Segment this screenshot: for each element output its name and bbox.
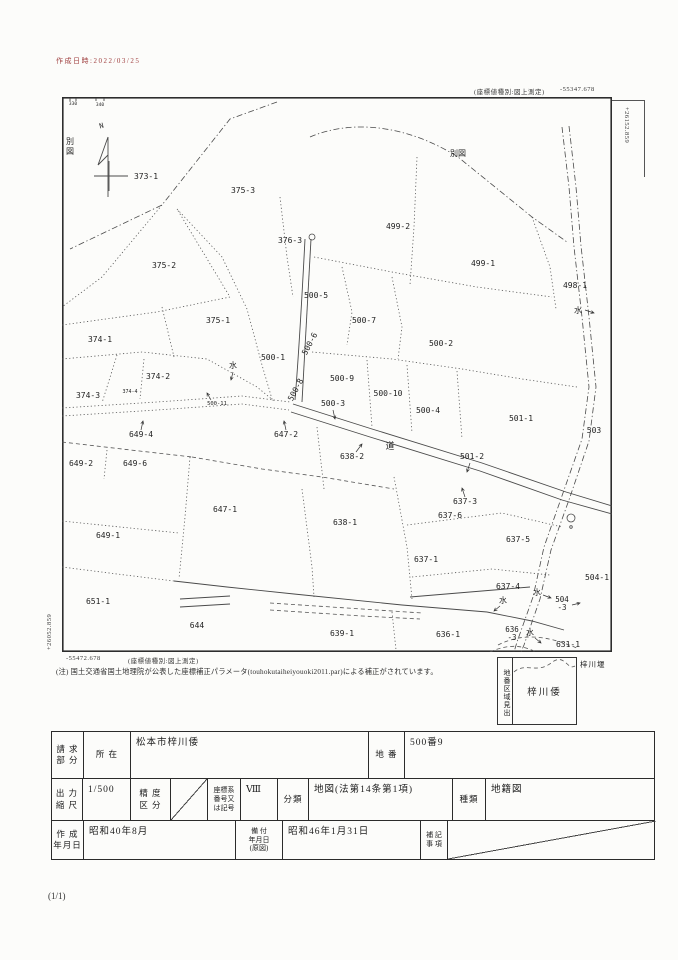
water-label: 水 [533,587,541,597]
parcel-label: 500-4 [416,406,440,415]
parcel-label: 636-3 [505,625,519,642]
remarks-label: 補 記事 項 [421,821,448,859]
request-part-label: 請 求部 分 [52,732,84,778]
weir-squiggle [513,658,576,678]
label-leader-arrow [283,421,286,430]
parcel-label: 375-1 [206,316,230,325]
district-area-name: 梓川倭 [527,684,562,698]
parcel-label: 637-4 [496,582,520,591]
parcel-label: 373-1 [134,172,158,181]
parcel-label: 501-1 [509,414,533,423]
parcel-label: 649-4 [129,430,153,439]
parcel-label: 500-11 [207,401,227,407]
map-area: 330340N別図373-1375-3376-3別図499-2499-1498-… [62,97,612,652]
junction-circle [570,526,573,529]
certificate-table: 請 求部 分 所 在 松本市梓川倭 地 番 500番9 出 力縮 尺 1/500 [51,731,655,860]
parcel-label: 376-3 [278,236,302,245]
label-leader-arrow [462,488,465,497]
parcel-label: 504-3 [555,595,569,612]
parcel-label: 644 [190,621,205,630]
filing-date-label: 備 付年月日(原図) [236,821,283,859]
parcel-label: 500-1 [261,353,285,362]
parcel-label: 499-2 [386,222,410,231]
x-coordinate-bottom: -55472.678 [66,655,101,662]
parcel-label: 651-1 [86,597,110,606]
parcel-label: 636-1 [436,630,460,639]
parcel-label: 649-6 [123,459,147,468]
label-leader-arrow [207,393,211,400]
cadastral-map-certificate: 作成日時:2022/03/25 (座標値種別:図上測定) -55347.678 … [0,0,678,960]
location-value: 松本市梓川倭 [131,732,369,778]
parcel-labels: 330340N別図373-1375-3376-3別図499-2499-1498-… [66,101,609,649]
classification-label: 分類 [278,779,309,820]
x-coordinate-top: -55347.678 [560,86,595,93]
table-row: 請 求部 分 所 在 松本市梓川倭 地 番 500番9 [52,732,654,778]
parcel-label: 374-3 [76,391,100,400]
parcel-label: 637-1 [414,555,438,564]
parcel-label: 503 [587,426,602,435]
survey-cross [94,161,128,191]
parcel-label: 374-2 [146,372,170,381]
map-ref-top: 別図 [450,149,466,158]
label-leader-arrow [494,606,500,611]
parcel-label: 649-2 [69,459,93,468]
parcel-label: 500-3 [321,399,345,408]
label-leader-arrow [141,421,144,430]
coordinate-system-label: 座標系番号又は記号 [208,779,241,820]
parcel-label: 649-1 [96,531,120,540]
junction-circle [309,234,315,240]
parcel-label: 638-2 [340,452,364,461]
label-leader-arrow [333,410,336,419]
road-label: 道 [385,440,394,451]
parcel-label: 647-2 [274,430,298,439]
north-arrow [98,137,108,197]
lot-number-label: 地 番 [369,732,405,778]
parcel-label: 639-1 [330,629,354,638]
kind-value: 地籍図 [486,779,656,820]
north-label: N [98,122,104,131]
coordinate-type-note-bottom: (座標値種別:図上測定) [128,655,199,665]
precision-class-label: 精 度区 分 [131,779,171,820]
parcel-label: 500-2 [429,339,453,348]
lot-number-value: 500番9 [405,732,656,778]
label-leader-arrow [572,602,580,605]
kind-label: 種類 [453,779,486,820]
parcel-label: 638-1 [333,518,357,527]
water-label: 水 [574,305,582,315]
border-tick-label: 330 [69,101,77,107]
water-label: 水 [499,595,507,605]
coordinate-system-value: Ⅷ [241,779,278,820]
district-index-label: 地番区域見出 [498,658,513,724]
parcel-label: 637-5 [506,535,530,544]
parcel-label: 374-1 [88,335,112,344]
parcel-label: 647-1 [213,505,237,514]
parcel-label: 374-4 [122,389,137,395]
map-ref-left: 別図 [66,137,74,156]
parcel-label: 499-1 [471,259,495,268]
border-tick-label: 340 [96,102,104,108]
parcel-label: 375-2 [152,261,176,270]
creation-date-value: 昭和40年8月 [84,821,236,859]
parcel-label: 501-2 [460,452,484,461]
label-leader-arrow [543,595,551,598]
water-label: 水 [229,360,237,370]
location-label: 所 在 [84,732,131,778]
output-scale-value: 1/500 [83,779,131,820]
parcel-label: 637-6 [438,511,462,520]
district-index-box: 地番区域見出 梓川倭 [497,657,577,725]
creation-date-label: 作 成年月日 [52,821,84,859]
label-leader-arrow [585,310,594,313]
parcel-label: 375-3 [231,186,255,195]
filing-date-value: 昭和46年1月31日 [283,821,421,859]
y-coordinate-left: +26052.859 [46,614,53,650]
remarks-empty-cell [448,821,656,859]
parcel-label: 637-3 [453,497,477,506]
weir-name-label: 梓川堰 [580,659,606,670]
map-linework: 330340N別図373-1375-3376-3別図499-2499-1498-… [62,97,612,652]
table-row: 出 力縮 尺 1/500 精 度区 分 座標系番号又は記号 Ⅷ 分類 地図(法第… [52,778,654,820]
label-leader-arrow [230,372,233,380]
water-label: 水 [526,627,534,637]
parcel-label: 498-1 [563,281,587,290]
parcel-label: 500-5 [304,291,328,300]
border-extension-line [612,100,645,101]
coordinate-type-note-top: (座標値種別:図上測定) [474,86,545,96]
border-extension-line [644,100,645,177]
page-number: (1/1) [48,891,66,901]
parcel-label: 500-9 [330,374,354,383]
precision-class-empty-cell [171,779,208,820]
label-leader-arrow [356,444,362,452]
classification-value: 地図(法第14条第1項) [309,779,453,820]
label-leader-arrow [535,638,541,643]
y-coordinate-right: +26152.859 [623,107,630,143]
parcel-label: 500-7 [352,316,376,325]
parcel-label: 631-1 [556,640,580,649]
junction-circle [567,514,575,522]
creation-timestamp: 作成日時:2022/03/25 [56,56,140,66]
parcel-label: 500-10 [374,389,403,398]
correction-footnote: (注) 国土交通省国土地理院が公表した座標補正パラメータ(touhokutaih… [56,667,438,677]
table-row: 作 成年月日 昭和40年8月 備 付年月日(原図) 昭和46年1月31日 補 記… [52,820,654,859]
parcel-label: 504-1 [585,573,609,582]
output-scale-label: 出 力縮 尺 [52,779,83,820]
